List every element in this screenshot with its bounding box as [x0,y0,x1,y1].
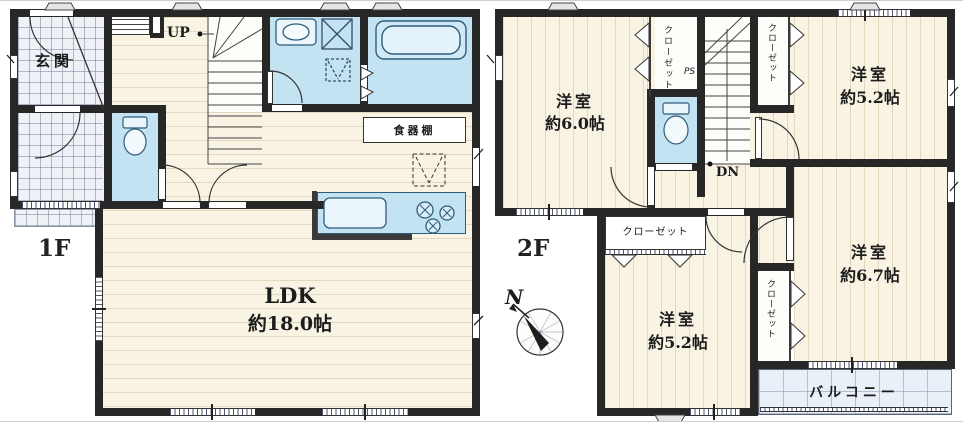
wall [750,17,758,113]
floor1-label: 1F [38,235,70,262]
closet-s-front [605,249,706,255]
wall [750,208,758,416]
room-ne-door-leaf [755,117,762,159]
kitchen-counter-edge-bottom [312,234,412,240]
bath-door-opening [361,65,367,101]
window-tick [211,404,213,420]
room-nw-west-window [495,55,503,81]
porch [14,209,106,227]
ps-label: PS [684,67,695,77]
closet-mid-front-line [649,17,651,97]
closet-s-label: クローゼット [605,223,706,238]
wall [10,9,480,17]
entrance-south-window [22,201,100,209]
wall [495,9,503,216]
up-label: UP [167,25,190,41]
room-s-south-window [690,408,740,416]
cupboard-label: 食器棚 [363,122,466,138]
toilet-2f-floor [655,97,697,163]
bathroom-floor [368,17,472,104]
closet-ne-label: クローゼット [765,23,778,103]
room-ne-north-window [838,9,910,17]
room-se-name: 洋室 [800,239,940,263]
window-tick [548,204,550,220]
room-nw-size: 約6.0帖 [505,110,645,134]
washroom-floor [270,17,360,104]
kitchen-counter-edge-left [312,191,317,240]
room-ne-name: 洋室 [800,61,940,85]
room-nw-door-opening [648,167,654,205]
window-tick [713,404,715,420]
window-tick [92,308,106,310]
kitchen-counter [317,192,466,234]
wall [95,408,480,416]
balcony-rail [760,407,948,412]
entrance-door-opening [30,10,73,16]
kitchen-door-opening [473,148,479,186]
closet-se-label: クローゼット [764,279,777,359]
room-se-east-window [947,171,955,203]
washroom-door-opening [272,105,302,111]
dn-label: DN [716,165,739,180]
room-s-size: 約5.2帖 [608,329,748,353]
room-ne-size: 約5.2帖 [800,84,940,108]
north-label: N [505,285,523,309]
window-tick [364,404,366,420]
hall-door-opening-left [163,202,200,208]
compass [509,304,563,355]
storage-door-opening [35,106,80,112]
hall-door-opening-right [209,202,246,208]
closet-se-front-line [789,271,791,361]
entrance-storage-floor [18,113,104,201]
closet-ne-front-line [788,17,790,105]
room-s-door-opening [708,209,744,215]
floor2-label: 2F [517,235,549,262]
genkan-window [10,55,18,79]
closet-mid-label: クローゼット [660,25,673,65]
stairs-2f [705,17,750,164]
room-s-name: 洋室 [608,306,748,330]
window-tick [864,5,866,21]
toilet-1f-floor [112,113,158,201]
wall [647,89,705,97]
ldk-name: LDK [200,283,380,308]
ldk-size: 約18.0帖 [200,309,380,336]
wall [750,263,794,271]
storage-window [10,171,18,197]
wall [786,167,794,219]
room-ne-east-window [947,79,955,107]
entrance-pillar-inner [153,15,160,33]
wall [597,208,605,416]
balcony-label: バルコニー [770,382,938,402]
genkan-label: 玄関 [26,50,82,71]
room-nw-name: 洋室 [505,88,645,112]
ldk-east-window [472,313,480,339]
window-tick [851,357,853,373]
wall [472,9,480,416]
washroom-door-leaf [267,71,273,104]
toilet-1f-door-opening [159,169,165,199]
toilet-2f-door-opening [656,164,692,170]
room-se-door-leaf [786,217,794,261]
wall [750,159,955,167]
room-se-size: 約6.7帖 [800,262,940,286]
floor-plan-canvas: 玄関 UP 食器棚 LDK 約18.0帖 1F 洋室 約6.0帖 洋室 約5.2… [0,0,963,422]
